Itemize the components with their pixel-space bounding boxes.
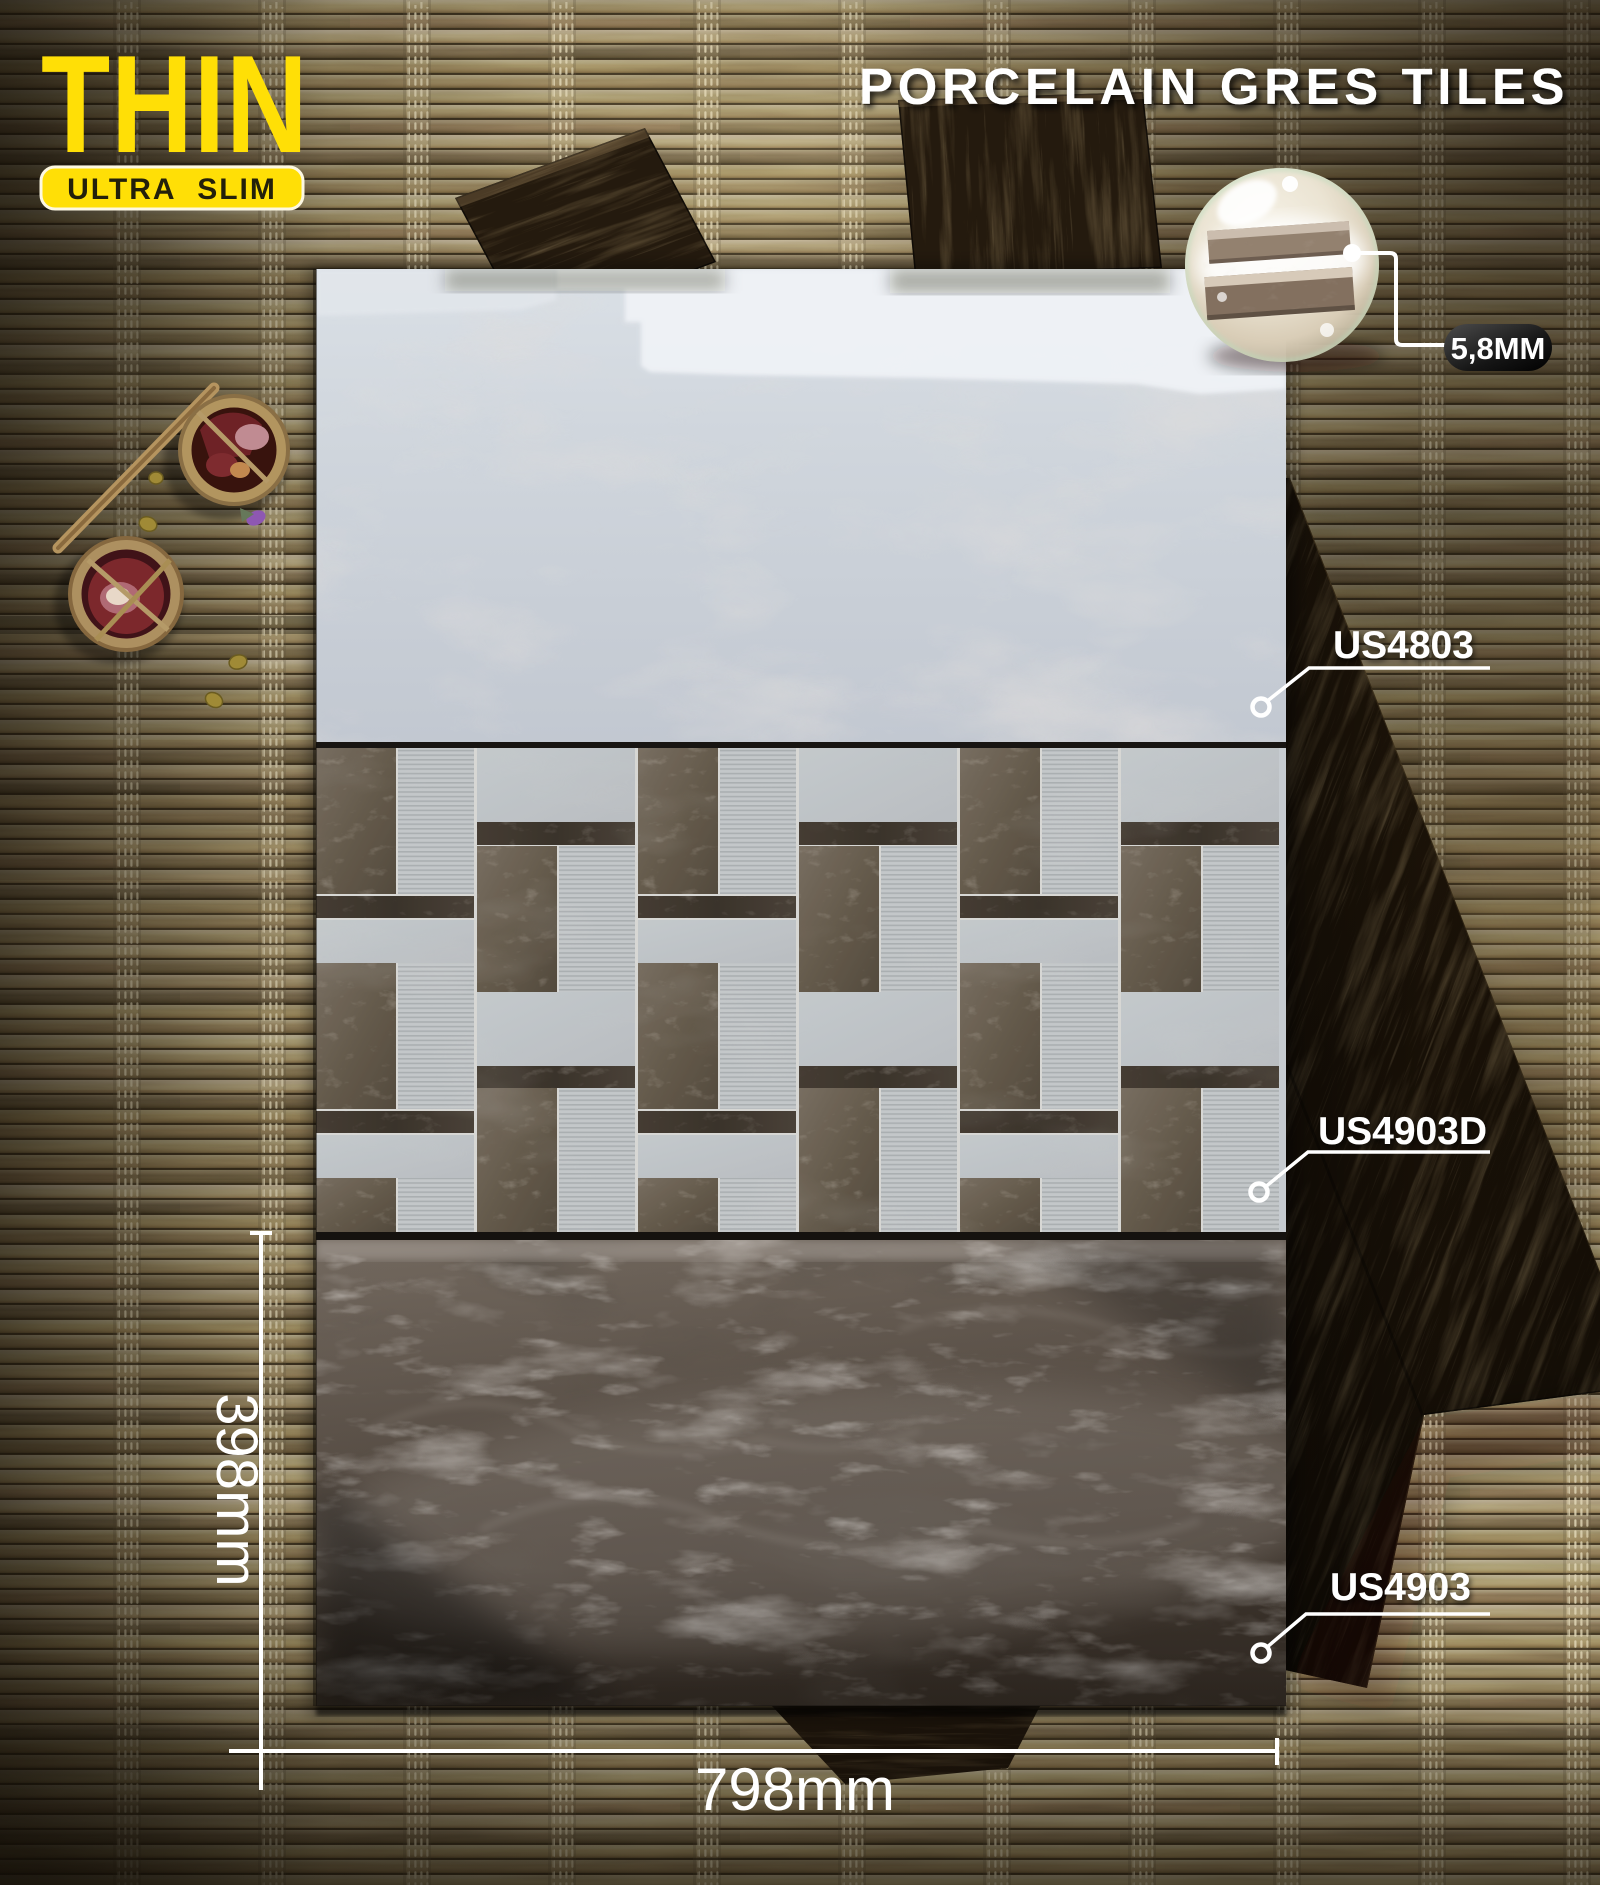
svg-text:THIN: THIN <box>41 26 309 182</box>
svg-text:5,8MM: 5,8MM <box>1451 331 1546 366</box>
svg-text:US4903D: US4903D <box>1318 1110 1487 1153</box>
svg-text:US4803: US4803 <box>1333 624 1474 667</box>
svg-text:US4903: US4903 <box>1330 1566 1471 1609</box>
svg-text:398mm: 398mm <box>204 1393 269 1586</box>
svg-text:ULTRA SLIM: ULTRA SLIM <box>67 173 277 206</box>
svg-text:798mm: 798mm <box>695 1756 895 1823</box>
svg-text:PORCELAIN GRES TILES: PORCELAIN GRES TILES <box>859 58 1565 115</box>
